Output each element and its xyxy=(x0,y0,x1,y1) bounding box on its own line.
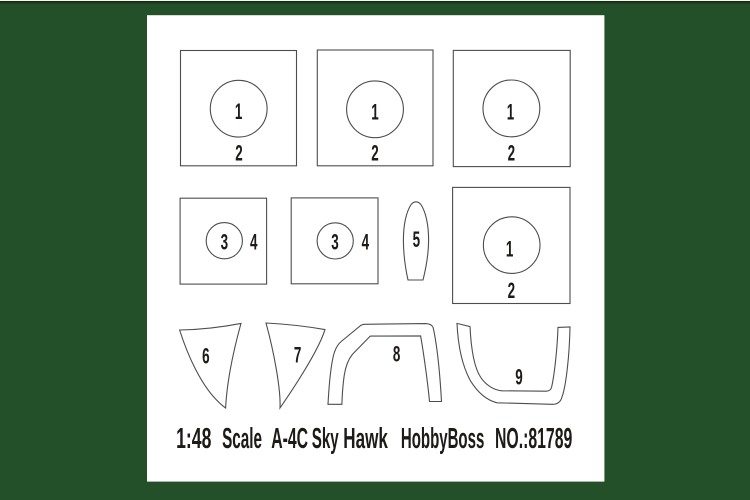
svg-text:2: 2 xyxy=(508,278,515,302)
svg-text:1: 1 xyxy=(235,100,242,124)
svg-text:8: 8 xyxy=(393,342,400,366)
svg-text:1:48: 1:48 xyxy=(176,423,211,455)
svg-text:7: 7 xyxy=(294,343,301,367)
svg-text:3: 3 xyxy=(331,230,338,254)
svg-text:HobbyBoss: HobbyBoss xyxy=(401,423,484,455)
svg-text:9: 9 xyxy=(515,365,522,389)
svg-text:1: 1 xyxy=(507,100,514,124)
svg-text:4: 4 xyxy=(362,230,370,254)
svg-text:4: 4 xyxy=(250,230,258,254)
svg-text:2: 2 xyxy=(508,141,515,165)
svg-text:Scale: Scale xyxy=(222,423,262,455)
svg-text:NO.:81789: NO.:81789 xyxy=(495,423,572,455)
svg-text:2: 2 xyxy=(235,141,242,165)
svg-text:1: 1 xyxy=(371,100,378,124)
svg-text:Hawk: Hawk xyxy=(343,423,388,455)
svg-text:1: 1 xyxy=(506,237,513,261)
svg-text:6: 6 xyxy=(202,344,209,368)
svg-text:A-4C: A-4C xyxy=(271,423,308,455)
svg-text:5: 5 xyxy=(413,228,420,252)
svg-text:3: 3 xyxy=(221,230,228,254)
svg-text:2: 2 xyxy=(371,141,378,165)
svg-text:Sky: Sky xyxy=(312,423,339,455)
